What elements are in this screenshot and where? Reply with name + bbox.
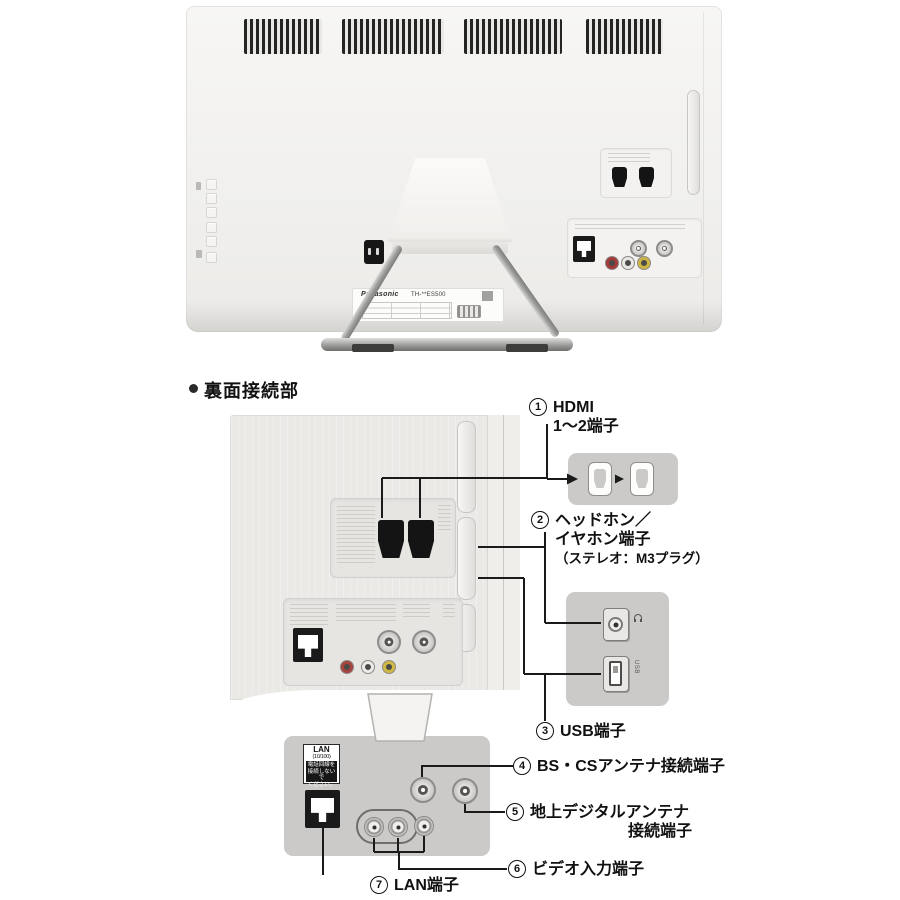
- lan-port: [573, 236, 595, 262]
- port-caption-text: [337, 506, 375, 564]
- ac-inlet: [364, 240, 384, 264]
- bottom-panel-inset: LAN (10/100) 電話回線を 接続しないで ください。: [284, 736, 490, 856]
- callout-number-7: 7: [370, 876, 388, 894]
- rear-control-button: [206, 236, 217, 247]
- hdmi-port-1: [378, 520, 404, 558]
- lan-label-block: LAN (10/100) 電話回線を 接続しないで ください。: [303, 744, 340, 784]
- rear-control-button: [206, 207, 217, 218]
- vent-grille: [244, 19, 322, 54]
- usb-port-label: USB: [633, 660, 639, 674]
- callout-number-3: 3: [536, 722, 554, 740]
- model-number: TH-**ES500: [411, 292, 446, 298]
- video-input-jack: [388, 817, 408, 837]
- panel-edge-line: [503, 415, 504, 700]
- video-jack-yellow: [383, 661, 395, 673]
- lan-warning-label: 電話回線を 接続しないで ください。: [306, 761, 337, 782]
- antenna-jack: [412, 630, 436, 654]
- antenna-jack: [656, 240, 673, 257]
- callout-bs-cs-antenna: 4 BS・CSアンテナ接続端子: [513, 757, 725, 776]
- section-bullet: [189, 384, 198, 393]
- port-cover: [457, 517, 476, 600]
- stand-pad: [352, 344, 394, 352]
- callout-number-1: 1: [529, 398, 547, 416]
- callout-headphone-line2: イヤホン端子: [555, 530, 709, 549]
- certification-logo: [457, 305, 481, 318]
- port-caption-text: [336, 604, 396, 624]
- port-caption-text: [438, 505, 451, 533]
- video-jack-white: [362, 661, 374, 673]
- terrestrial-antenna-jack: [452, 778, 478, 804]
- spec-table: [362, 302, 452, 319]
- headphone-jack-icon: [608, 617, 623, 632]
- side-terminal-cover: [687, 90, 700, 195]
- panel-edge-line: [600, 596, 601, 702]
- video-jack-white: [622, 257, 634, 269]
- rear-control-button: [206, 179, 217, 190]
- rear-control-button: [206, 222, 217, 233]
- callout-hdmi-line2: 1〜2端子: [553, 417, 619, 436]
- lan-port-diagram: [293, 628, 323, 662]
- vent-grille: [342, 19, 444, 54]
- callout-number-6: 6: [508, 860, 526, 878]
- port-caption-text: [575, 224, 685, 232]
- headphone-icon: [634, 614, 642, 619]
- callout-hdmi-line1: HDMI: [553, 398, 619, 417]
- video-input-jack: [364, 817, 384, 837]
- callout-headphone-line1: ヘッドホン／: [555, 511, 709, 530]
- rear-control-button: [206, 193, 217, 204]
- hdmi-port: [612, 167, 627, 187]
- port-caption-text: [403, 604, 430, 620]
- usb-port: [603, 656, 629, 692]
- port-caption-text: [443, 604, 455, 620]
- headphone-jack-port: [603, 608, 629, 641]
- stand-pad: [506, 344, 548, 352]
- hdmi-connector-icon: [630, 462, 654, 496]
- callout-bs-cs-text: BS・CSアンテナ接続端子: [537, 757, 725, 776]
- callout-usb: 3 USB端子: [536, 722, 626, 741]
- side-panel-inset: USB: [566, 592, 669, 706]
- callout-terrestrial-line1: 地上デジタルアンテナ: [530, 803, 692, 822]
- hdmi-inset: [568, 453, 678, 505]
- callout-video-text: ビデオ入力端子: [532, 860, 644, 879]
- video-input-jack: [414, 816, 434, 836]
- lan-label-title: LAN: [304, 745, 339, 754]
- antenna-jack: [630, 240, 647, 257]
- button-label-mark: [196, 182, 201, 190]
- callout-number-4: 4: [513, 757, 531, 775]
- product-page: Panasonic TH-**ES500 裏面接続部: [0, 0, 900, 900]
- usb-slot-icon: [609, 661, 622, 686]
- callout-headphone: 2 ヘッドホン／ イヤホン端子 （ステレオ：M3プラグ）: [531, 511, 709, 568]
- stand-neck-foot: [392, 242, 508, 254]
- port-cover: [457, 421, 476, 513]
- video-jack-yellow: [638, 257, 650, 269]
- button-label-mark: [196, 250, 202, 258]
- section-heading: 裏面接続部: [204, 377, 299, 403]
- callout-video-input: 6 ビデオ入力端子: [508, 860, 644, 879]
- video-jack-red: [341, 661, 353, 673]
- hdmi-connector-icon: [588, 462, 612, 496]
- callout-hdmi: 1 HDMI 1〜2端子: [529, 398, 619, 436]
- lan-label-subtitle: (10/100): [304, 754, 339, 760]
- rear-control-button: [206, 252, 217, 263]
- callout-lan-text: LAN端子: [394, 876, 459, 895]
- vent-grille: [586, 19, 663, 54]
- vent-grille: [464, 19, 562, 54]
- hdmi-port: [639, 167, 654, 187]
- panel-edge-line: [630, 596, 631, 702]
- video-jack-red: [606, 257, 618, 269]
- cabinet-edge-line: [703, 12, 704, 324]
- antenna-jack: [377, 630, 401, 654]
- port-caption-text: [608, 153, 650, 162]
- callout-headphone-line3: （ステレオ：M3プラグ）: [555, 549, 709, 568]
- bs-cs-antenna-jack: [410, 777, 436, 803]
- callout-terrestrial-antenna: 5 地上デジタルアンテナ 接続端子: [506, 803, 692, 841]
- callout-number-5: 5: [506, 803, 524, 821]
- callout-usb-text: USB端子: [560, 722, 626, 741]
- callout-number-2: 2: [531, 511, 549, 529]
- port-caption-text: [290, 604, 328, 628]
- lan-port-inset: [305, 790, 340, 828]
- callout-lan: 7 LAN端子: [370, 876, 459, 895]
- label-chip: [482, 291, 493, 301]
- hdmi-port-2: [408, 520, 434, 558]
- callout-terrestrial-line2: 接続端子: [530, 822, 692, 841]
- panel-bottom-bezel: [229, 690, 521, 738]
